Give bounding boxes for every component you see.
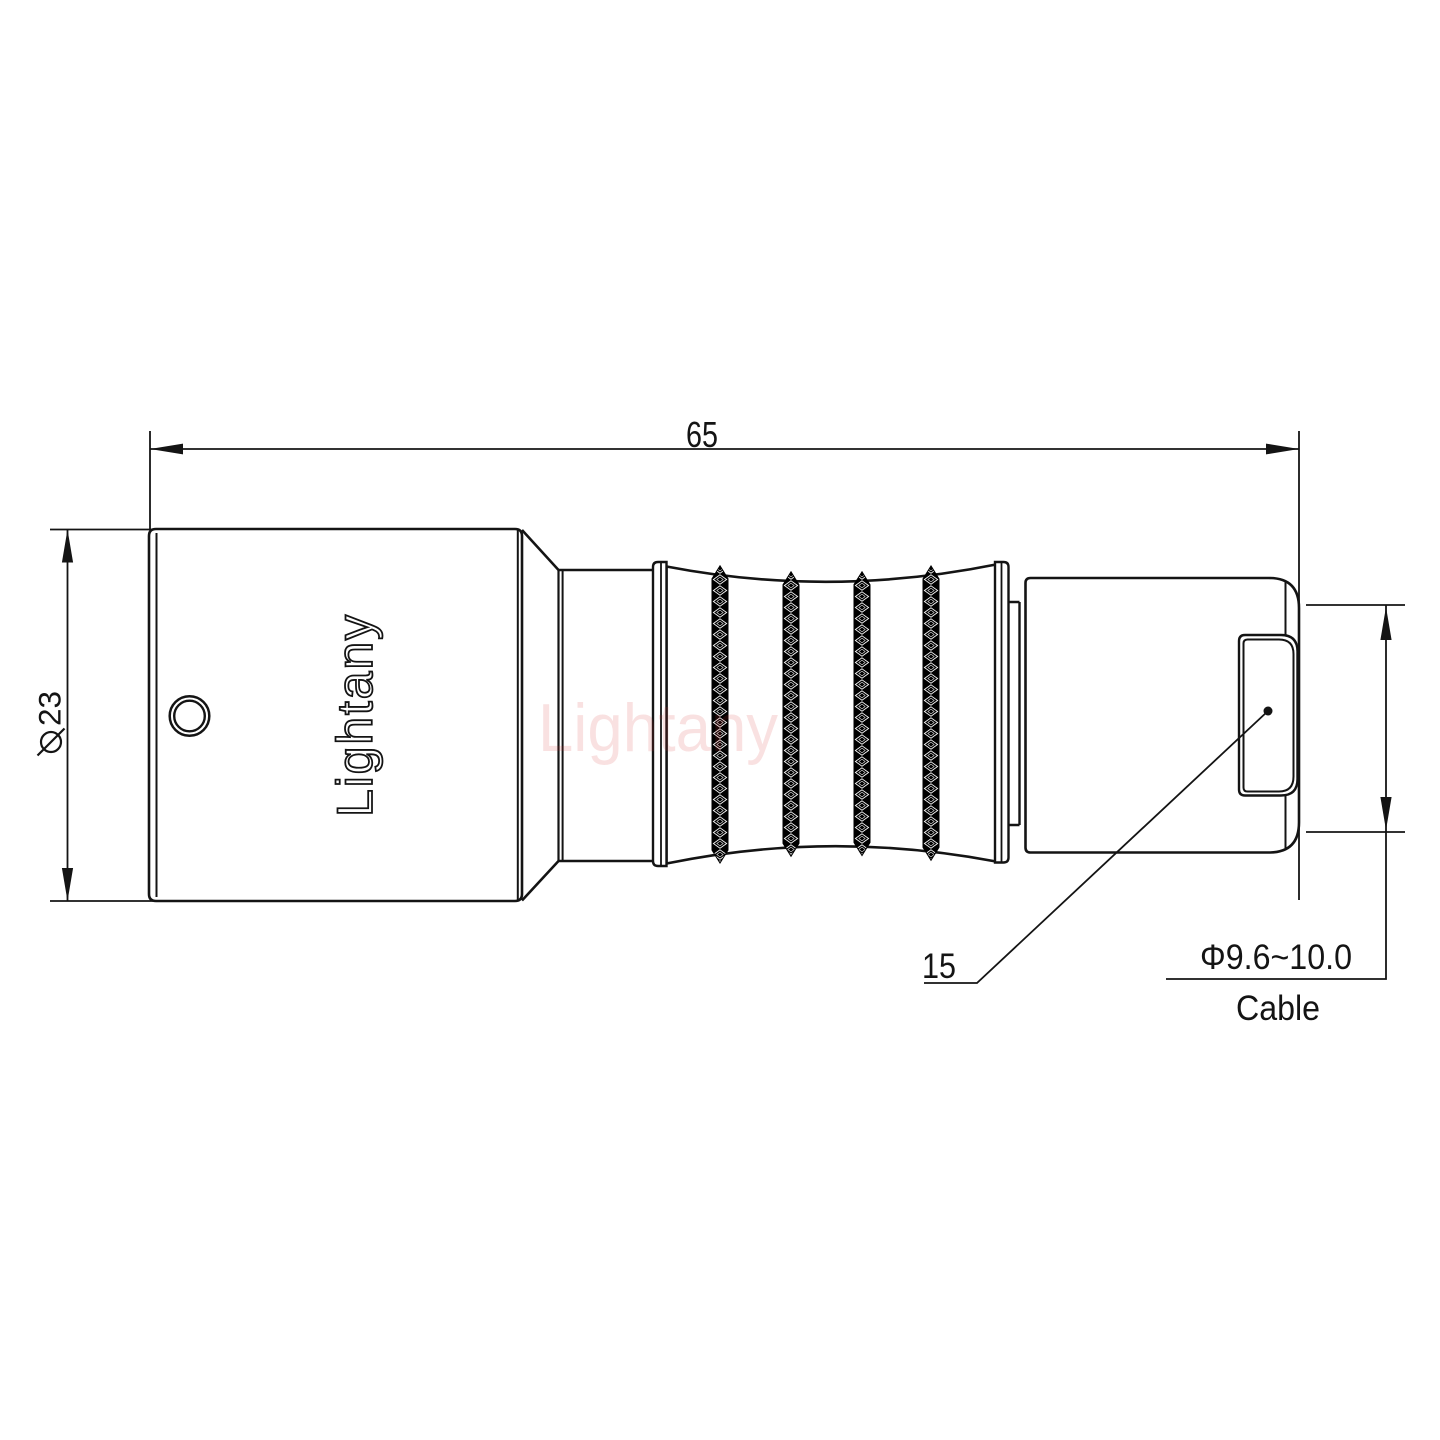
svg-text:Cable: Cable [1236,989,1320,1028]
svg-text:Φ9.6~10.0: Φ9.6~10.0 [1200,938,1352,977]
svg-text:23: 23 [32,691,68,726]
svg-text:Lightany: Lightany [538,690,778,766]
svg-text:15: 15 [922,947,956,986]
svg-text:Lightany: Lightany [327,615,383,817]
svg-text:65: 65 [686,414,718,455]
